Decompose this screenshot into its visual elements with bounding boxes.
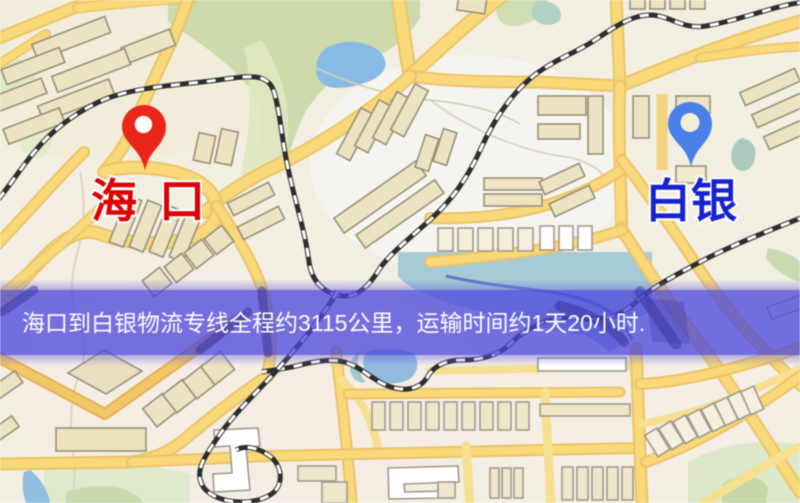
svg-text:白银: 白银 xyxy=(645,175,737,227)
svg-text:海口: 海口 xyxy=(91,175,227,227)
svg-text:海口到白银物流专线全程约3115公里，运输时间约1天20小时: 海口到白银物流专线全程约3115公里，运输时间约1天20小时. xyxy=(22,310,645,336)
